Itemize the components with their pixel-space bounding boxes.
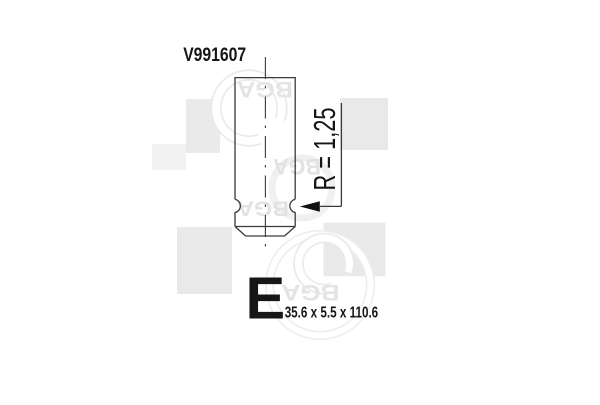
svg-text:R = 1,25: R = 1,25 [307,108,342,191]
svg-text:BGA: BGA [281,280,339,305]
svg-text:V991607: V991607 [183,45,246,66]
svg-text:E: E [246,264,286,331]
svg-text:BGA: BGA [237,196,289,219]
svg-text:35.6 x 5.5 x 110.6: 35.6 x 5.5 x 110.6 [285,304,379,321]
